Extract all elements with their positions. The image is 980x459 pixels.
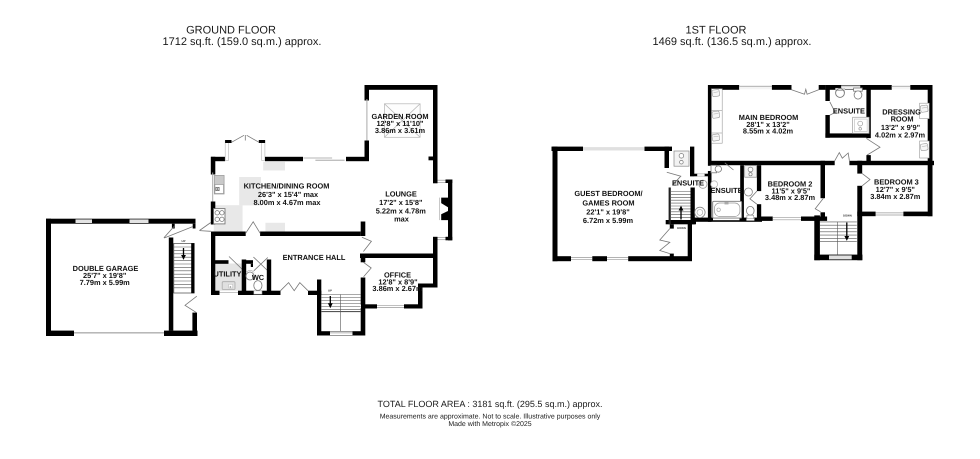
- svg-text:Made with Metropix ©2025: Made with Metropix ©2025: [448, 420, 531, 428]
- svg-text:8.00m x 4.67m max: 8.00m x 4.67m max: [254, 198, 322, 207]
- svg-text:7.79m x 5.99m: 7.79m x 5.99m: [80, 278, 131, 287]
- svg-text:GUEST BEDROOM/: GUEST BEDROOM/: [574, 189, 642, 198]
- svg-text:8.55m x 4.02m: 8.55m x 4.02m: [743, 126, 794, 135]
- svg-text:1712 sq.ft. (159.0 sq.m.) appr: 1712 sq.ft. (159.0 sq.m.) approx.: [163, 36, 322, 48]
- svg-text:Measurements are approximate.: Measurements are approximate. Not to sca…: [380, 413, 601, 421]
- svg-text:3.48m x 2.87m: 3.48m x 2.87m: [765, 193, 816, 202]
- svg-text:GAMES ROOM: GAMES ROOM: [582, 198, 634, 207]
- svg-text:3.86m x 2.67m: 3.86m x 2.67m: [372, 284, 423, 293]
- svg-text:ENSUITE: ENSUITE: [710, 186, 742, 195]
- svg-text:UP: UP: [328, 289, 332, 293]
- svg-text:WC: WC: [252, 273, 265, 282]
- svg-text:DOWN: DOWN: [843, 213, 852, 217]
- svg-text:ENSUITE: ENSUITE: [672, 178, 704, 187]
- svg-text:6.72m x 5.99m: 6.72m x 5.99m: [583, 216, 634, 225]
- svg-text:ENSUITE: ENSUITE: [833, 106, 865, 115]
- svg-text:max: max: [394, 214, 410, 223]
- svg-text:UTILITY: UTILITY: [214, 270, 242, 279]
- svg-text:3.84m x 2.87m: 3.84m x 2.87m: [870, 192, 921, 201]
- svg-text:1ST FLOOR: 1ST FLOOR: [686, 25, 747, 37]
- svg-text:3.86m x 3.61m: 3.86m x 3.61m: [375, 126, 426, 135]
- svg-text:4.02m x 2.97m: 4.02m x 2.97m: [875, 131, 926, 140]
- svg-text:1469 sq.ft. (136.5 sq.m.) appr: 1469 sq.ft. (136.5 sq.m.) approx.: [653, 36, 812, 48]
- svg-text:ENTRANCE HALL: ENTRANCE HALL: [283, 253, 346, 262]
- svg-text:UP: UP: [182, 239, 186, 243]
- svg-text:ROOM: ROOM: [891, 114, 914, 123]
- svg-text:TOTAL FLOOR AREA : 3181 sq.ft.: TOTAL FLOOR AREA : 3181 sq.ft. (295.5 sq…: [378, 399, 603, 409]
- svg-text:GROUND FLOOR: GROUND FLOOR: [186, 25, 276, 37]
- svg-text:DOWN: DOWN: [677, 226, 686, 230]
